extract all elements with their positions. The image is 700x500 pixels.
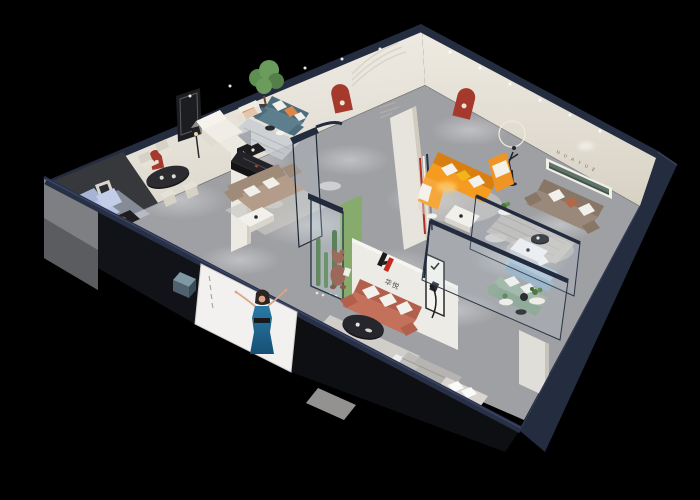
screenshot-root: H U A Y U E xyxy=(0,0,700,500)
showroom-render: H U A Y U E xyxy=(0,0,700,500)
side-table xyxy=(427,213,437,218)
side-table-black xyxy=(265,125,275,130)
side-table-white xyxy=(276,131,285,136)
